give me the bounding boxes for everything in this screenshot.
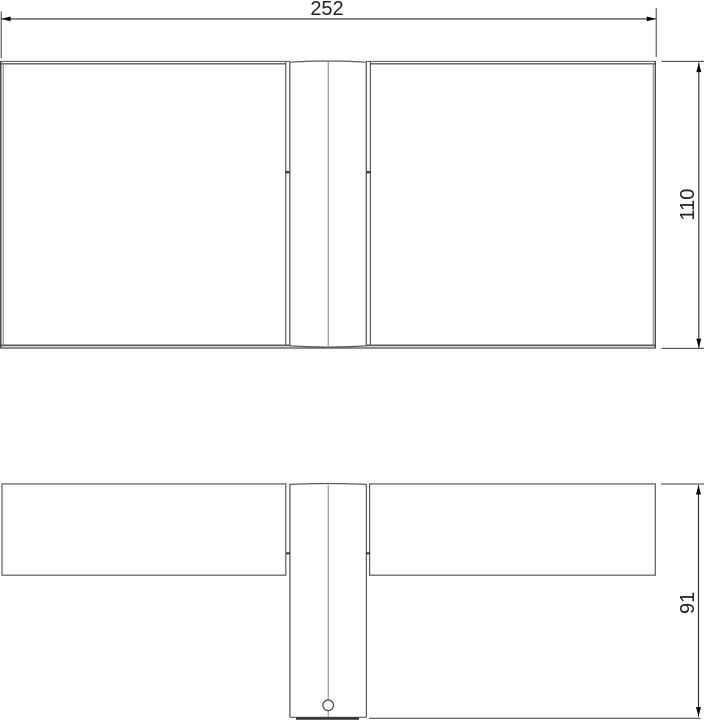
svg-text:91: 91 (677, 592, 699, 614)
svg-text:110: 110 (677, 189, 699, 221)
svg-text:252: 252 (310, 0, 343, 20)
